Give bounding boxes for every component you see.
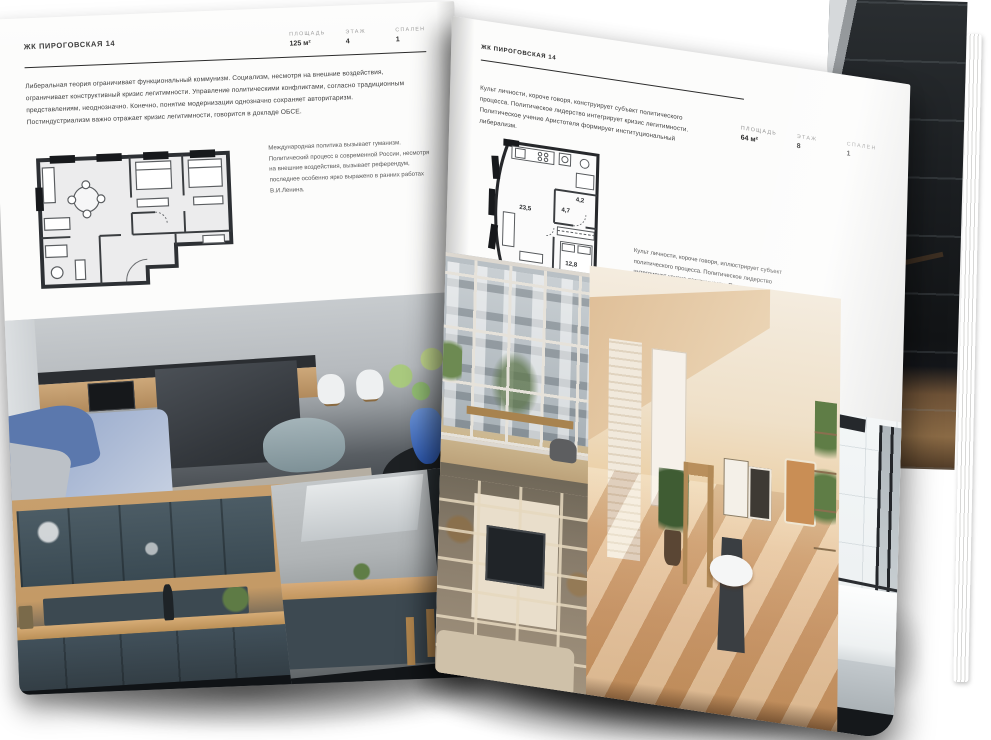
page-title: ЖК ПИРОГОВСКАЯ 14	[24, 39, 116, 52]
spec-area-value: 64 м²	[741, 134, 777, 146]
photo-sunny-attic-studio	[586, 266, 841, 736]
wine-bottle-shape	[162, 584, 173, 621]
wood-chair-shape	[682, 462, 713, 588]
page-title: ЖК ПИРОГОВСКАЯ 14	[481, 44, 556, 61]
spec-bedrooms-label: СПАЛЕН	[395, 26, 425, 33]
tv-shape	[485, 525, 546, 589]
right-page: ЖК ПИРОГОВСКАЯ 14 Культ личности, короче…	[435, 16, 911, 740]
spec-area-value: 125 м²	[289, 39, 326, 47]
plant-shelf-shape	[814, 400, 838, 552]
white-chair-shape	[317, 373, 346, 405]
oven-shape	[87, 381, 135, 412]
left-plan-caption: Международная политика вызывает гуманизм…	[268, 137, 435, 283]
spec-area: ПЛОЩАДЬ 64 м²	[740, 125, 777, 171]
leaning-frame-shape	[723, 458, 749, 518]
spec-floor-label: ЭТАЖ	[345, 28, 375, 35]
spec-bedrooms-value: 1	[396, 35, 426, 43]
left-specs: ПЛОЩАДЬ 125 м² ЭТАЖ 4 СПАЛЕН 1	[289, 26, 426, 47]
armchair-shape	[784, 457, 817, 527]
plant-pot-shape	[664, 529, 682, 566]
left-plan-row: Международная политика вызывает гуманизм…	[28, 127, 436, 293]
spec-floor: ЭТАЖ 8	[796, 134, 827, 179]
base-cabinet-shape	[280, 591, 449, 670]
spec-floor: ЭТАЖ 4	[345, 28, 376, 45]
upper-cabinets-shape	[16, 495, 275, 587]
spec-floor-value: 4	[346, 37, 376, 45]
left-page: ЖК ПИРОГОВСКАЯ 14 ПЛОЩАДЬ 125 м² ЭТАЖ 4 …	[0, 1, 481, 695]
room-label-bath: 4,2	[576, 197, 585, 205]
spec-floor-value: 8	[797, 143, 827, 154]
spec-area: ПЛОЩАДЬ 125 м²	[289, 30, 326, 47]
bar-stool-shape	[406, 617, 416, 666]
room-label-hall: 4,7	[561, 207, 570, 215]
spec-bedrooms: СПАЛЕН 1	[395, 26, 426, 43]
jar-shape	[18, 606, 34, 630]
extractor-hood-shape	[301, 474, 423, 542]
herb-pot-shape	[351, 559, 372, 585]
dark-stool-shape	[717, 536, 746, 653]
spec-bedrooms: СПАЛЕН 1	[846, 141, 877, 186]
magazine-mockup-scene: ЖК ПИРОГОВСКАЯ 14 ПЛОЩАДЬ 125 м² ЭТАЖ 4 …	[0, 0, 991, 740]
spec-bedrooms-value: 1	[846, 150, 876, 161]
left-body-text: Либеральная теория ограничивает функцион…	[25, 66, 417, 130]
floor-plan-125m2	[28, 135, 244, 293]
leaning-frame-shape	[748, 466, 771, 521]
plant-shape	[216, 586, 257, 618]
spec-area-label: ПЛОЩАДЬ	[289, 30, 325, 37]
